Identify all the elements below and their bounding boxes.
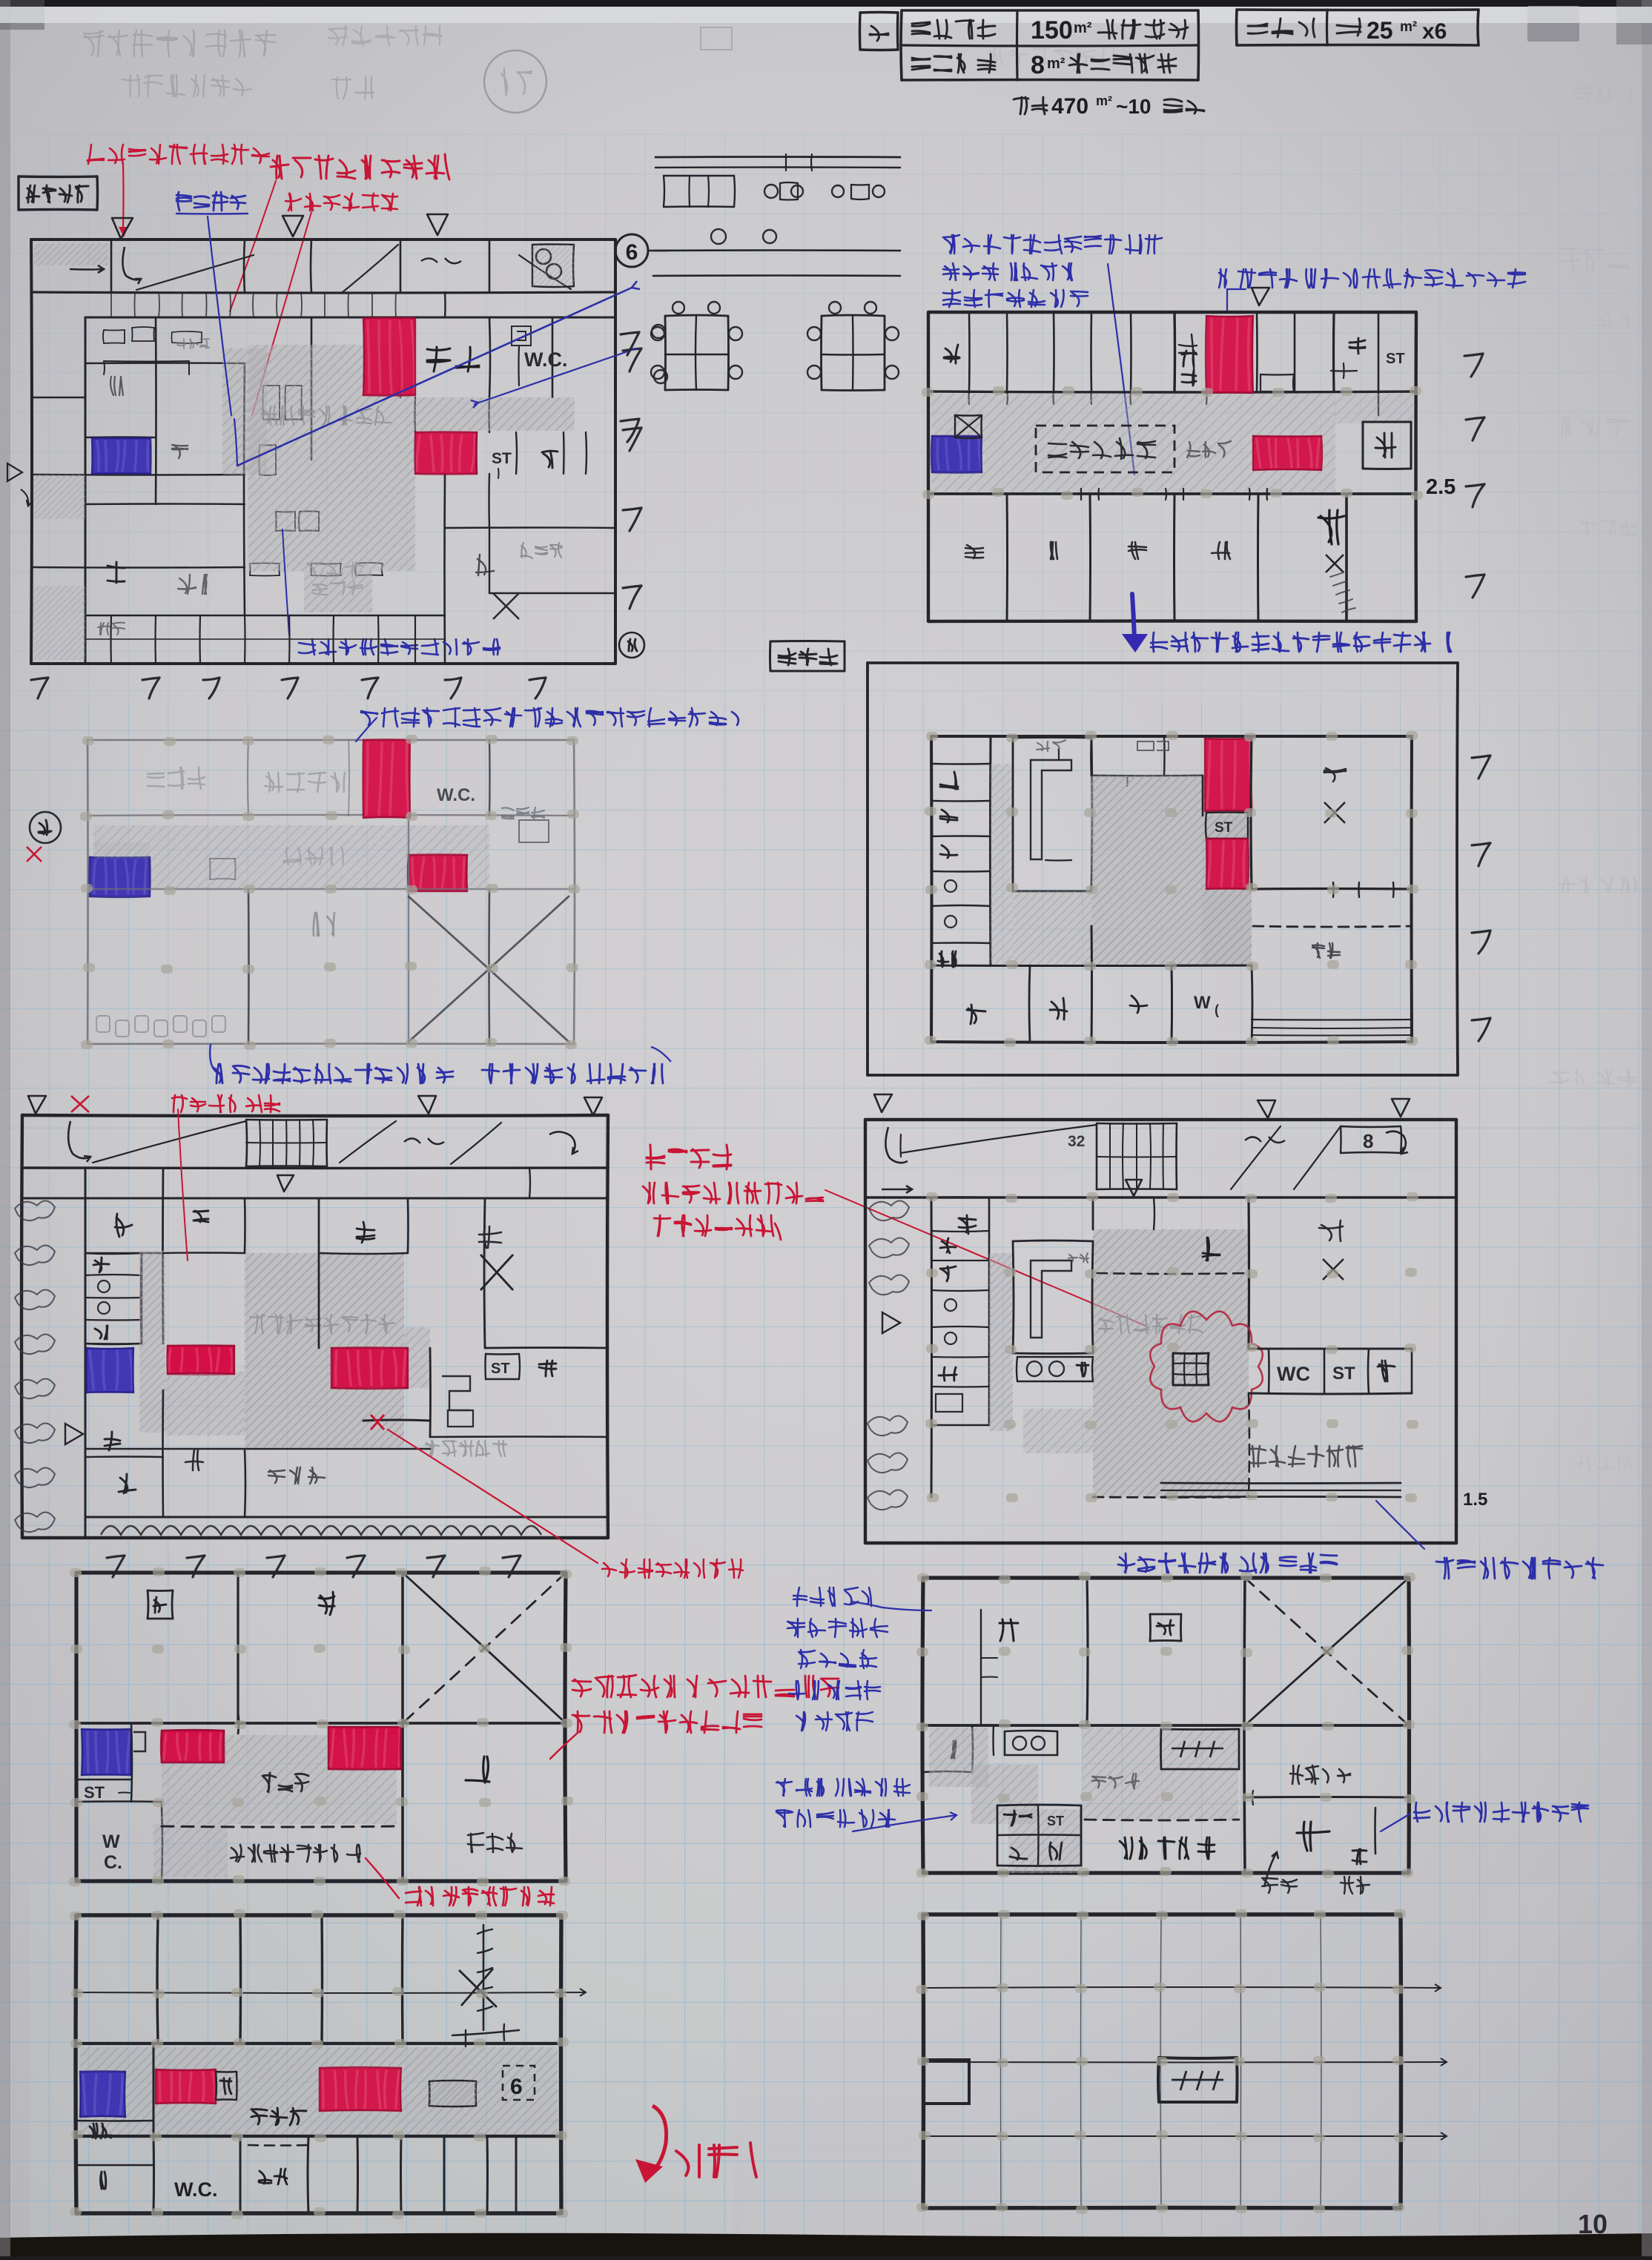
svg-text:8: 8	[1363, 1130, 1373, 1152]
svg-text:ST: ST	[491, 1361, 510, 1377]
svg-text:32: 32	[1068, 1133, 1085, 1150]
svg-text:ST: ST	[492, 450, 512, 467]
svg-text:ST: ST	[1332, 1364, 1355, 1384]
svg-text:150: 150	[1031, 16, 1073, 44]
svg-text:m²: m²	[1096, 93, 1112, 108]
svg-text:(: (	[1215, 1002, 1219, 1017]
svg-text:W: W	[102, 1831, 120, 1852]
svg-text:1.5: 1.5	[1463, 1490, 1487, 1510]
svg-text:W.C.: W.C.	[524, 348, 568, 371]
svg-text:m²: m²	[1047, 56, 1065, 72]
svg-text:470: 470	[1051, 94, 1088, 119]
svg-text:m²: m²	[1400, 19, 1417, 35]
svg-text:2.5: 2.5	[1426, 475, 1456, 499]
svg-text:~10: ~10	[1116, 95, 1152, 118]
svg-text:C.: C.	[104, 1852, 122, 1873]
svg-text:ST: ST	[1047, 1814, 1064, 1828]
svg-text:W.C.: W.C.	[174, 2178, 218, 2201]
svg-text:m²: m²	[1074, 20, 1092, 36]
svg-text:W.C.: W.C.	[437, 785, 475, 805]
svg-text:W: W	[1194, 993, 1211, 1013]
svg-text:WC: WC	[1277, 1363, 1310, 1385]
svg-text:25: 25	[1367, 17, 1393, 44]
svg-text:10: 10	[1578, 2209, 1608, 2239]
svg-text:ST: ST	[1215, 820, 1233, 836]
svg-text:6: 6	[626, 240, 638, 265]
svg-text:ST: ST	[84, 1783, 105, 1802]
svg-text:ST: ST	[1386, 351, 1405, 367]
svg-text:8: 8	[1031, 51, 1045, 79]
svg-text:x6: x6	[1422, 19, 1447, 44]
svg-text:6: 6	[510, 2075, 523, 2099]
